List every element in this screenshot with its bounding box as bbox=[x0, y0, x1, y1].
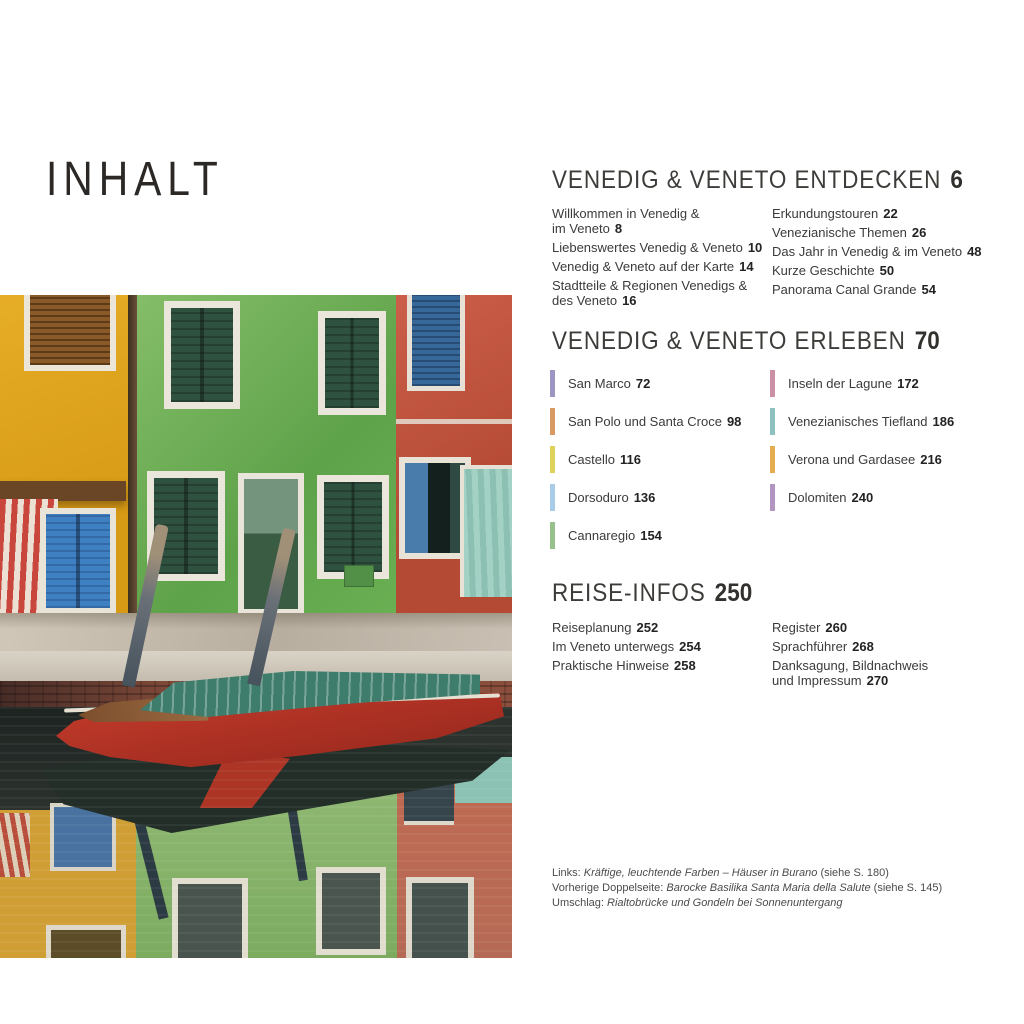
toc-item-page: 254 bbox=[679, 639, 701, 654]
caption-prefix: Links: bbox=[552, 867, 584, 879]
toc-item: Venedig & Veneto auf der Karte14 bbox=[552, 259, 784, 274]
chapter-page: 116 bbox=[620, 452, 641, 467]
caption-prefix: Vorherige Doppelseite: bbox=[552, 882, 666, 894]
reiseinfos-right-column: Register260 Sprachführer268 Danksagung, … bbox=[772, 620, 992, 692]
chapter-color-bar bbox=[770, 408, 775, 435]
section-heading-page: 6 bbox=[950, 166, 963, 194]
section-heading-entdecken: VENEDIG & VENETO ENTDECKEN6 bbox=[552, 166, 963, 195]
caption-description: Barocke Basilika Santa Maria della Salut… bbox=[666, 882, 870, 894]
toc-item-page: 16 bbox=[622, 293, 636, 308]
chapter-color-bar bbox=[550, 370, 555, 397]
toc-item-label: Willkommen in Venedig & im Veneto bbox=[552, 206, 699, 236]
toc-item-page: 14 bbox=[739, 259, 753, 274]
reiseinfos-left-column: Reiseplanung252 Im Veneto unterwegs254 P… bbox=[552, 620, 777, 677]
chapter-page: 216 bbox=[920, 452, 942, 467]
chapter-color-bar bbox=[550, 522, 555, 549]
chapter-label: San Marco bbox=[568, 376, 631, 391]
erleben-right-column: Inseln der Lagune172 Venezianisches Tief… bbox=[770, 370, 954, 522]
toc-item-label: Das Jahr in Venedig & im Veneto bbox=[772, 244, 962, 259]
caption-suffix: (siehe S. 180) bbox=[817, 867, 889, 879]
toc-item-label: Praktische Hinweise bbox=[552, 658, 669, 673]
chapter-item: Inseln der Lagune172 bbox=[770, 370, 954, 397]
section-heading-page: 250 bbox=[715, 579, 753, 607]
chapter-label: Dorsoduro bbox=[568, 490, 629, 505]
photo-pavement-shadow bbox=[0, 613, 512, 629]
toc-item-page: 26 bbox=[912, 225, 926, 240]
chapter-item: Castello116 bbox=[550, 446, 741, 473]
photo-green-house-window bbox=[317, 475, 389, 579]
photo-utility-box bbox=[344, 565, 374, 587]
chapter-page: 186 bbox=[932, 414, 954, 429]
toc-item: Register260 bbox=[772, 620, 992, 635]
chapter-color-bar bbox=[770, 370, 775, 397]
chapter-item: Verona und Gardasee216 bbox=[770, 446, 954, 473]
toc-item-label: Reiseplanung bbox=[552, 620, 632, 635]
toc-item-label: Register bbox=[772, 620, 820, 635]
toc-item: Sprachführer268 bbox=[772, 639, 992, 654]
chapter-page: 240 bbox=[852, 490, 874, 505]
toc-item-page: 260 bbox=[825, 620, 847, 635]
caption-description: Rialtobrücke und Gondeln bei Sonnenunter… bbox=[607, 897, 842, 909]
toc-item: Stadtteile & Regionen Venedigs & des Ven… bbox=[552, 278, 784, 308]
chapter-item: San Marco72 bbox=[550, 370, 741, 397]
toc-item: Willkommen in Venedig & im Veneto8 bbox=[552, 206, 784, 236]
toc-item-label: Kurze Geschichte bbox=[772, 263, 875, 278]
caption-suffix: (siehe S. 145) bbox=[871, 882, 943, 894]
toc-item-label: Venezianische Themen bbox=[772, 225, 907, 240]
chapter-item: San Polo und Santa Croce98 bbox=[550, 408, 741, 435]
page-title: INHALT bbox=[46, 152, 224, 207]
chapter-item: Venezianisches Tiefland186 bbox=[770, 408, 954, 435]
chapter-color-bar bbox=[770, 446, 775, 473]
chapter-label: Cannaregio bbox=[568, 528, 635, 543]
toc-item: Danksagung, Bildnachweis und Impressum27… bbox=[772, 658, 992, 688]
section-heading-page: 70 bbox=[915, 327, 940, 355]
toc-item: Kurze Geschichte50 bbox=[772, 263, 987, 278]
toc-item-page: 22 bbox=[883, 206, 897, 221]
toc-item: Panorama Canal Grande54 bbox=[772, 282, 987, 297]
toc-item: Praktische Hinweise258 bbox=[552, 658, 777, 673]
entdecken-left-column: Willkommen in Venedig & im Veneto8 Liebe… bbox=[552, 206, 784, 312]
chapter-page: 136 bbox=[634, 490, 656, 505]
toc-item-label: Stadtteile & Regionen Venedigs & des Ven… bbox=[552, 278, 747, 308]
chapter-label: San Polo und Santa Croce bbox=[568, 414, 722, 429]
caption-prefix: Umschlag: bbox=[552, 897, 607, 909]
chapter-item: Dorsoduro136 bbox=[550, 484, 741, 511]
toc-item-page: 48 bbox=[967, 244, 981, 259]
section-heading-text: VENEDIG & VENETO ENTDECKEN bbox=[552, 166, 941, 194]
section-heading-text: REISE-INFOS bbox=[552, 579, 706, 607]
chapter-label: Dolomiten bbox=[788, 490, 847, 505]
toc-item-label: Danksagung, Bildnachweis und Impressum bbox=[772, 658, 928, 688]
chapter-item: Dolomiten240 bbox=[770, 484, 954, 511]
chapter-color-bar bbox=[550, 484, 555, 511]
toc-item: Erkundungstouren22 bbox=[772, 206, 987, 221]
chapter-color-bar bbox=[550, 408, 555, 435]
toc-item-page: 8 bbox=[615, 221, 622, 236]
toc-item-page: 268 bbox=[852, 639, 874, 654]
toc-item-page: 54 bbox=[922, 282, 936, 297]
toc-item-label: Liebenswertes Venedig & Veneto bbox=[552, 240, 743, 255]
toc-item-label: Venedig & Veneto auf der Karte bbox=[552, 259, 734, 274]
caption-description: Kräftige, leuchtende Farben – Häuser in … bbox=[584, 867, 818, 879]
toc-item-page: 50 bbox=[880, 263, 894, 278]
toc-item-page: 258 bbox=[674, 658, 696, 673]
toc-item: Liebenswertes Venedig & Veneto10 bbox=[552, 240, 784, 255]
toc-item: Venezianische Themen26 bbox=[772, 225, 987, 240]
photo-blue-shutter-window bbox=[40, 508, 116, 614]
toc-item-page: 252 bbox=[637, 620, 659, 635]
chapter-label: Verona und Gardasee bbox=[788, 452, 915, 467]
photo-awning bbox=[0, 481, 126, 501]
toc-item: Das Jahr in Venedig & im Veneto48 bbox=[772, 244, 987, 259]
photo-green-house-window bbox=[318, 311, 386, 415]
caption-line: Links: Kräftige, leuchtende Farben – Häu… bbox=[552, 866, 982, 881]
chapter-label: Inseln der Lagune bbox=[788, 376, 892, 391]
chapter-page: 154 bbox=[640, 528, 662, 543]
chapter-page: 172 bbox=[897, 376, 919, 391]
chapter-color-bar bbox=[550, 446, 555, 473]
photo-yellow-house-shuttered-window bbox=[24, 295, 116, 371]
caption-line: Vorherige Doppelseite: Barocke Basilika … bbox=[552, 881, 982, 896]
toc-item-label: Sprachführer bbox=[772, 639, 847, 654]
chapter-page: 98 bbox=[727, 414, 741, 429]
photo-credit-captions: Links: Kräftige, leuchtende Farben – Häu… bbox=[552, 866, 982, 911]
erleben-left-column: San Marco72 San Polo und Santa Croce98 C… bbox=[550, 370, 741, 560]
section-heading-text: VENEDIG & VENETO ERLEBEN bbox=[552, 327, 906, 355]
photo-red-house-window bbox=[407, 295, 465, 391]
photo-green-house-window bbox=[164, 301, 240, 409]
book-contents-page: INHALT bbox=[0, 0, 1024, 1024]
toc-item: Reiseplanung252 bbox=[552, 620, 777, 635]
photo-drainpipe bbox=[128, 295, 137, 619]
chapter-label: Venezianisches Tiefland bbox=[788, 414, 927, 429]
toc-item-page: 270 bbox=[867, 673, 889, 688]
section-heading-erleben: VENEDIG & VENETO ERLEBEN70 bbox=[552, 327, 940, 356]
toc-item-label: Im Veneto unterwegs bbox=[552, 639, 674, 654]
caption-line: Umschlag: Rialtobrücke und Gondeln bei S… bbox=[552, 896, 982, 911]
photo-red-house-floor-line bbox=[396, 419, 512, 424]
entdecken-right-column: Erkundungstouren22 Venezianische Themen2… bbox=[772, 206, 987, 301]
toc-item-page: 10 bbox=[748, 240, 762, 255]
chapter-item: Cannaregio154 bbox=[550, 522, 741, 549]
burano-canal-photo bbox=[0, 295, 512, 958]
photo-teal-curtain-door bbox=[460, 465, 512, 597]
chapter-color-bar bbox=[770, 484, 775, 511]
chapter-page: 72 bbox=[636, 376, 650, 391]
toc-item: Im Veneto unterwegs254 bbox=[552, 639, 777, 654]
toc-item-label: Erkundungstouren bbox=[772, 206, 878, 221]
toc-item-label: Panorama Canal Grande bbox=[772, 282, 917, 297]
chapter-label: Castello bbox=[568, 452, 615, 467]
section-heading-reiseinfos: REISE-INFOS250 bbox=[552, 579, 752, 608]
